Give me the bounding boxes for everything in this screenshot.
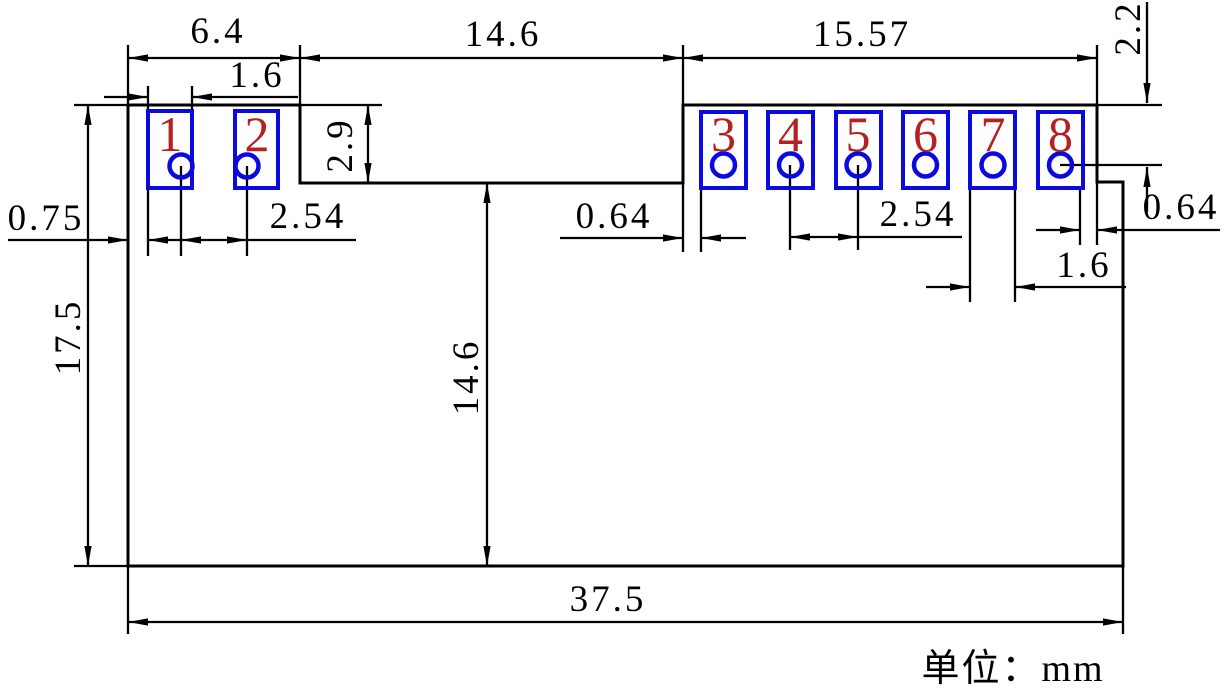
dim-pad7-width: 1.6 [1056, 245, 1111, 286]
pcb-dimension-drawing: 1 2 3 4 5 6 7 8 6.4 1.6 14.6 15.57 2.2 2… [0, 0, 1225, 692]
dim-left-hole-pitch: 2.54 [270, 196, 347, 237]
pin-number-2: 2 [245, 106, 270, 162]
dim-pad1-width: 1.6 [229, 55, 284, 96]
pin-number-1: 1 [158, 106, 183, 162]
dim-pad8-to-right-edge: 0.64 [1143, 187, 1220, 228]
drawing-svg: 1 2 3 4 5 6 7 8 6.4 1.6 14.6 15.57 2.2 2… [0, 0, 1225, 692]
pin-number-8: 8 [1048, 106, 1073, 162]
dimension-lines [8, 2, 1220, 622]
pin-number-3: 3 [711, 106, 736, 162]
dim-left-group-width: 6.4 [190, 11, 245, 52]
dim-right-group-width: 15.57 [813, 14, 911, 55]
pin-number-4: 4 [778, 106, 803, 162]
dim-right-hole-pitch: 2.54 [880, 194, 957, 235]
dim-notch-width: 14.6 [465, 14, 542, 55]
dim-left-edge-to-pad1: 0.75 [8, 198, 85, 239]
pin-number-7: 7 [981, 106, 1006, 162]
dim-body-width: 37.5 [570, 579, 647, 620]
dim-top-to-hole8: 2.2 [1108, 0, 1149, 55]
pin-numbers: 1 2 3 4 5 6 7 8 [158, 106, 1074, 162]
units-note: 单位：mm [921, 648, 1104, 690]
pin-number-6: 6 [913, 106, 938, 162]
dim-body-height: 17.5 [48, 299, 89, 376]
pin-number-5: 5 [846, 106, 871, 162]
pads [148, 111, 1083, 188]
dim-notch-to-pad3: 0.64 [576, 196, 653, 237]
dim-notch-bottom-to-body-bottom: 14.6 [446, 339, 487, 416]
dimension-labels: 6.4 1.6 14.6 15.57 2.2 2.9 17.5 14.6 0.7… [8, 0, 1220, 620]
dim-notch-depth: 2.9 [320, 117, 361, 172]
